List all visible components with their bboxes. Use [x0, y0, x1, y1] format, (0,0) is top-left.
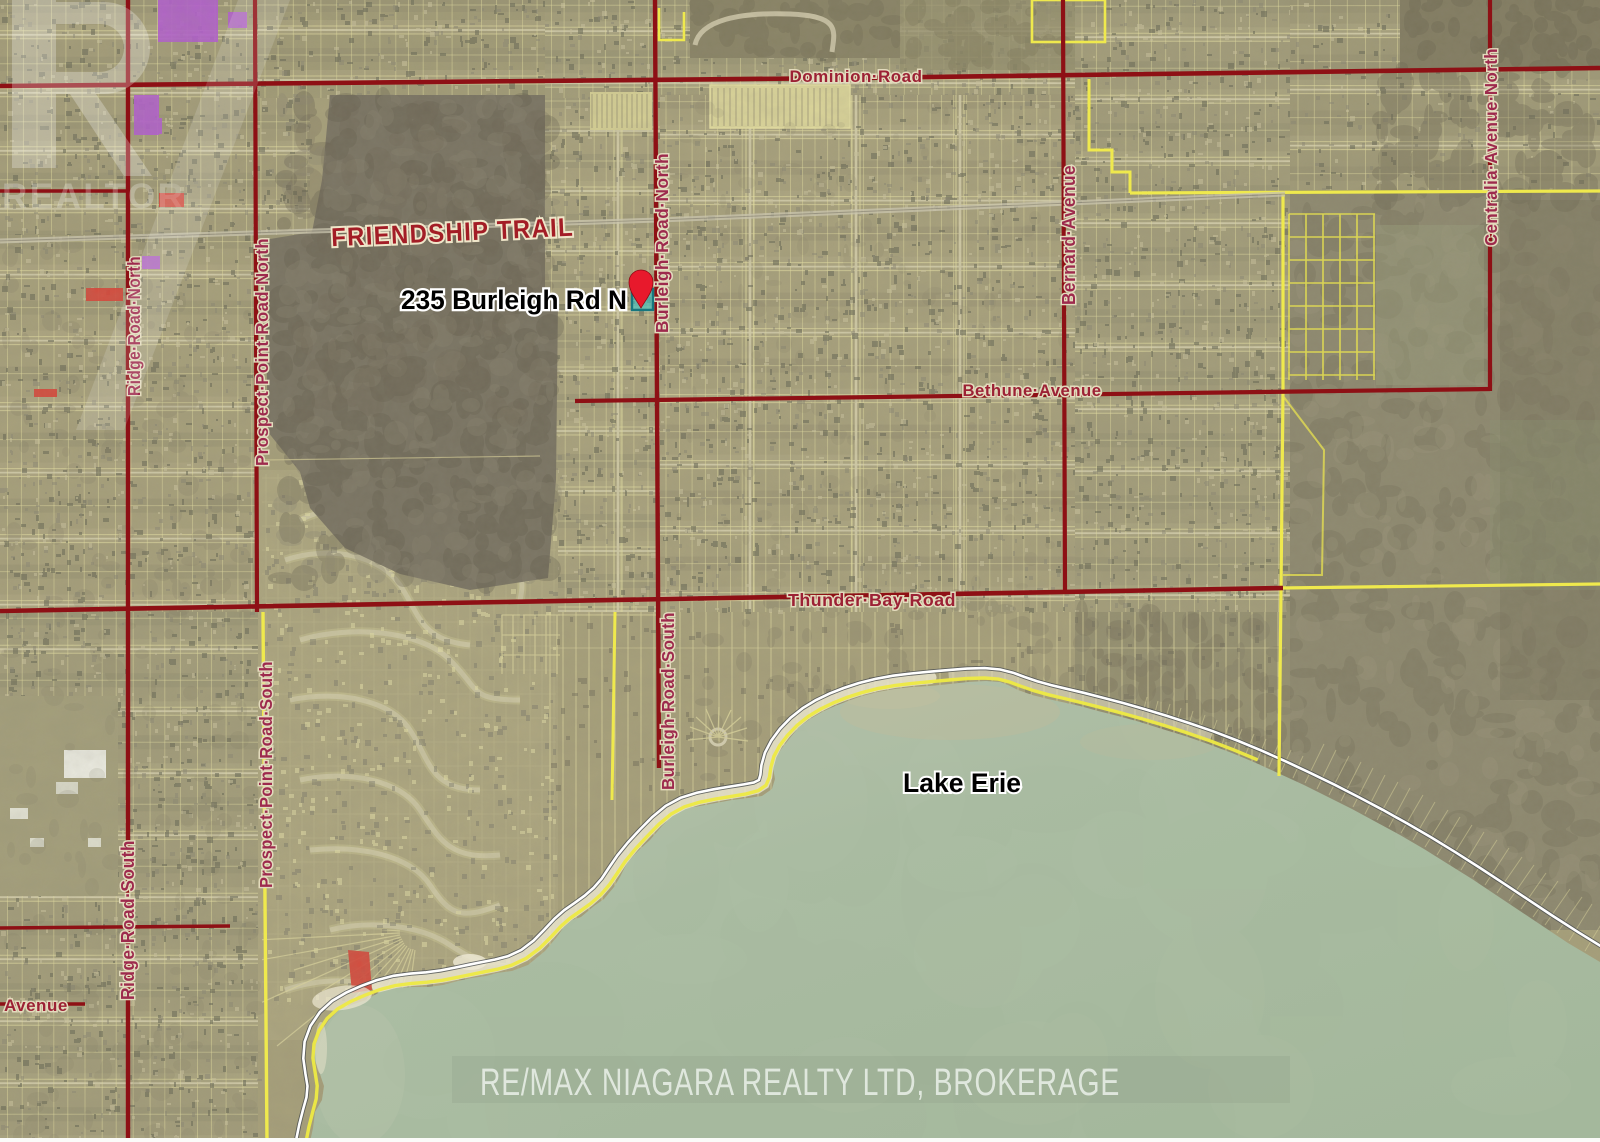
svg-text:235 Burleigh Rd N: 235 Burleigh Rd N: [401, 285, 627, 315]
svg-text:Lake Erie: Lake Erie: [903, 768, 1021, 798]
svg-text:Prospect·Point·Road·South: Prospect·Point·Road·South: [256, 661, 276, 888]
svg-text:Burleigh·Road·North: Burleigh·Road·North: [652, 153, 672, 333]
svg-text:Bethune·Avenue: Bethune·Avenue: [963, 382, 1102, 400]
svg-text:Centralia·Avenue·North: Centralia·Avenue·North: [1481, 48, 1501, 246]
svg-text:RE/MAX NIAGARA REALTY LTD, BRO: RE/MAX NIAGARA REALTY LTD, BROKERAGE: [480, 1062, 1120, 1104]
svg-text:Avenue: Avenue: [4, 996, 68, 1015]
svg-text:Dominion·Road: Dominion·Road: [790, 68, 923, 86]
svg-text:Burleigh·Road·South: Burleigh·Road·South: [658, 612, 678, 790]
svg-text:Prospect·Point·Road·North: Prospect·Point·Road·North: [252, 238, 272, 466]
svg-text:Ridge·Road·South: Ridge·Road·South: [118, 840, 138, 1000]
svg-text:Thunder·Bay·Road: Thunder·Bay·Road: [788, 590, 956, 610]
svg-text:Bernard·Avenue: Bernard·Avenue: [1059, 165, 1079, 305]
svg-text:REALTOR: REALTOR: [2, 177, 185, 216]
